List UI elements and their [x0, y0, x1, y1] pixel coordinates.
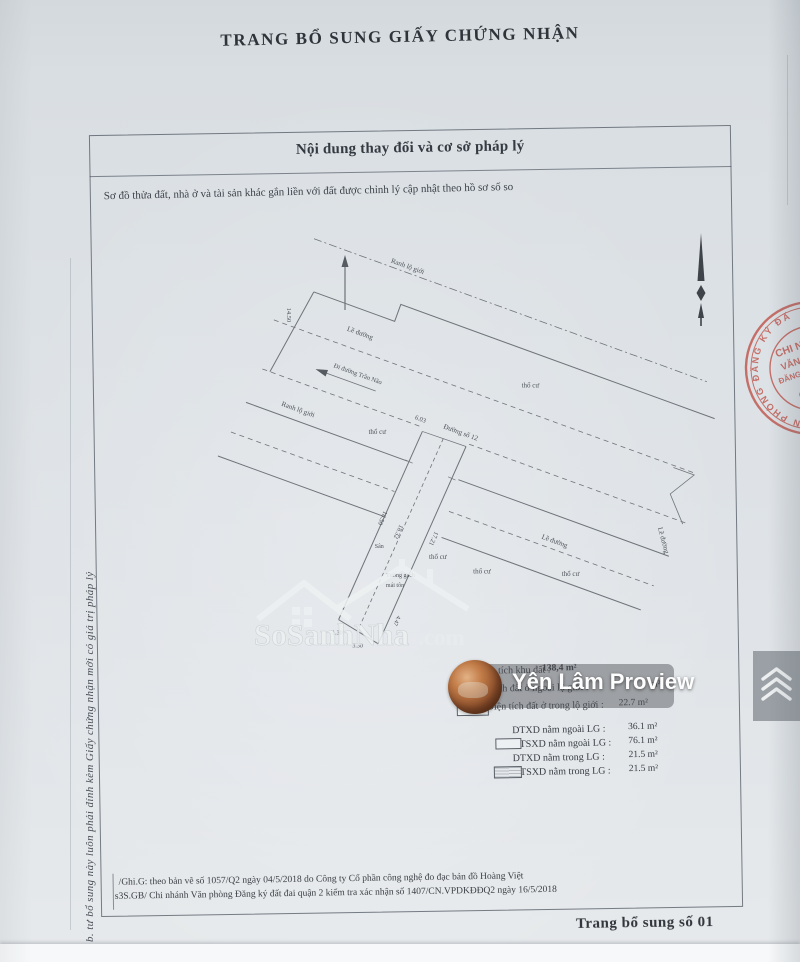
- label-duong-so-12: Đường số 12: [442, 423, 479, 443]
- label-mai-ton: mái tôn: [386, 583, 404, 589]
- dim-18-32: 18.32: [392, 523, 404, 539]
- watermark-proview: Yên Lâm Proview: [448, 660, 676, 716]
- dim-14-50: 14.50: [285, 308, 292, 323]
- dim-3-30: 3.30: [352, 644, 363, 650]
- label-tho-cu-1: thổ cư: [522, 382, 540, 390]
- label-le-duong-1: Lề đường: [346, 325, 375, 342]
- label-san: Sân: [375, 544, 384, 550]
- road-band-labels: Ranh lộ giới Lề đường thổ cư Đi đường Tr…: [221, 228, 734, 636]
- content-box-subtitle: Sơ đồ thửa đất, nhà ở và tài sản khác gắ…: [104, 181, 514, 202]
- red-circular-stamp: VĂN PHÒNG ĐĂNG KÝ ĐẤT ĐAI CHI NHÁNH VĂN …: [722, 282, 800, 458]
- legend-swatch-open-2: [495, 738, 521, 749]
- page-footer-label: Trang bổ sung số 01: [576, 914, 714, 933]
- content-box-header: Nội dung thay đổi và cơ sở pháp lý: [90, 135, 730, 162]
- label-tho-cu-2: thổ cư: [562, 570, 580, 578]
- legend-build-value-4: 21.5 m²: [629, 764, 658, 775]
- survey-arrow: [342, 255, 349, 310]
- label-di-duong-tran-nao: Đi đường Trần Não: [333, 362, 383, 386]
- paper-edge-line: [787, 55, 788, 205]
- road-band-lines: [218, 233, 733, 614]
- parcel: Sân Tường gạch mái tôn thổ cư 18.50 18.3…: [325, 426, 492, 670]
- cadastral-sketch: Ranh lộ giới Lề đường thổ cư Đi đường Tr…: [70, 215, 750, 685]
- proview-badge-text: Yên Lâm Proview: [512, 669, 694, 695]
- dim-18-50: 18.50: [376, 510, 388, 526]
- legend-build-label-4: DTSXD nằm trong LG :: [513, 765, 611, 778]
- legend-build-label-3: DTXD nằm trong LG :: [513, 752, 605, 765]
- dim-4-47: 4.47: [391, 614, 401, 626]
- dim-1-30: 1.30: [332, 630, 343, 636]
- scan-bottom-strip: [0, 944, 800, 962]
- label-tho-cu-4: thổ cư: [429, 553, 447, 561]
- footnote-line-2: s3S.GB/ Chi nhánh Văn phòng Đăng ký đất …: [115, 885, 557, 902]
- side-note-vertical: b. tư bổ sung này luôn phải đính kèm Giấ…: [84, 512, 102, 942]
- footnote-line-1: /Ghi.G: theo bản vẽ số 1057/Q2 ngày 04/5…: [119, 871, 524, 887]
- label-le-duong-2: Lề đường: [541, 533, 570, 550]
- legend-build-value-3: 21.5 m²: [629, 750, 658, 761]
- legend-build-label-2: DTSXD nằm ngoài LG :: [512, 737, 611, 750]
- dim-17-21: 17.21: [427, 530, 439, 546]
- legend-build-value-1: 36.1 m²: [628, 722, 657, 733]
- label-tho-cu-3: thổ cư: [368, 428, 386, 436]
- stacked-chevrons-icon: [753, 651, 800, 721]
- legend-swatch-hatched: [494, 766, 522, 778]
- avatar: [448, 660, 502, 714]
- label-le-duong-3: Lề đường: [656, 526, 671, 555]
- dim-6-03: 6.03: [414, 414, 427, 424]
- header-divider: [90, 166, 732, 177]
- page-title: TRANG BỔ SUNG GIẤY CHỨNG NHẬN: [0, 19, 800, 56]
- legend-build-value-2: 76.1 m²: [628, 736, 657, 747]
- north-arrow-icon: [697, 233, 706, 326]
- label-tho-cu-5: thổ cư: [473, 567, 491, 575]
- scanned-certificate-page: TRANG BỔ SUNG GIẤY CHỨNG NHẬN Nội dung t…: [0, 0, 800, 962]
- corner-logo-box: [753, 651, 800, 721]
- legend-build-label-1: DTXD nằm ngoài LG :: [512, 724, 606, 737]
- label-tuong-gach: Tường gạch: [386, 573, 415, 579]
